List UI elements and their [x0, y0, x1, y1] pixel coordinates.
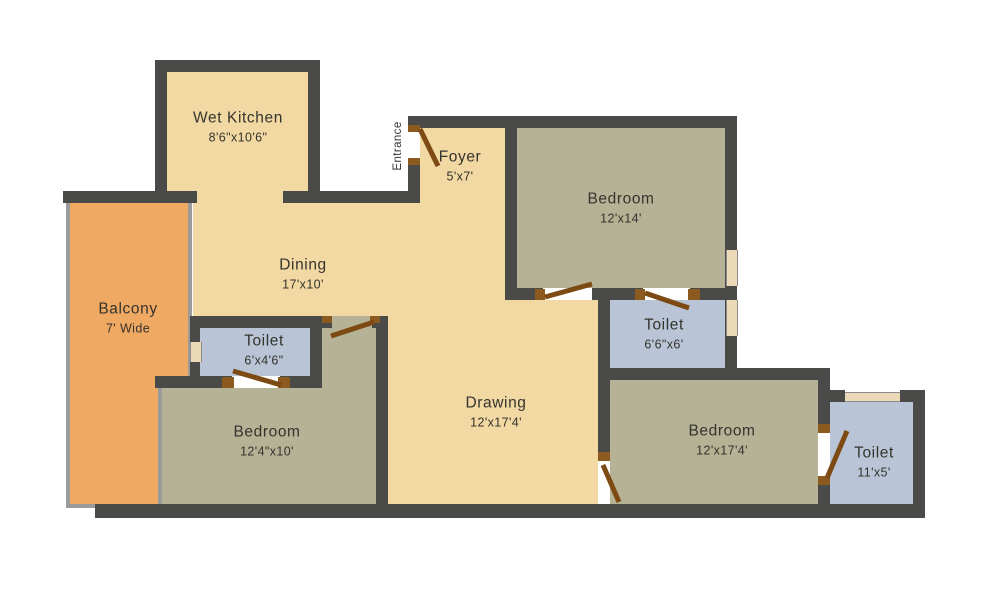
- toilet-left-floor: [200, 328, 310, 376]
- door-post: [222, 377, 234, 388]
- wall-kitchen-right: [308, 60, 320, 203]
- door-post: [598, 452, 610, 461]
- wet-kitchen-floor: [167, 72, 308, 203]
- balcony-bedroom-divider: [158, 388, 162, 506]
- dining-drawing-passage-floor: [505, 300, 598, 316]
- wall-bedroom-bottomleft-top: [155, 376, 232, 388]
- window-toilet-bottomright: [845, 392, 900, 402]
- door-post: [818, 476, 830, 485]
- wall-toilet-left-west-a: [190, 328, 200, 342]
- door-post: [322, 316, 332, 323]
- wall-toilet-left-west-b: [190, 362, 200, 376]
- wall-drawing-right: [598, 380, 610, 458]
- toilet-right-floor: [610, 300, 725, 368]
- bedroom-topright-floor: [517, 128, 725, 288]
- bedroom-bottomright-floor: [610, 380, 818, 506]
- balcony-railing-bottom: [66, 504, 98, 508]
- wall-toilet-left-top: [190, 316, 322, 328]
- entrance-label: Entrance: [392, 121, 404, 170]
- wall-foyer-left-lower: [408, 163, 420, 203]
- wall-toilet-right-left: [598, 288, 610, 380]
- wall-bedroom-bottomright-top: [598, 368, 830, 380]
- window-toilet-left: [190, 342, 202, 362]
- door-post: [535, 289, 545, 300]
- balcony-floor-lower: [70, 376, 158, 504]
- floor-plan: Wet Kitchen 8'6"x10'6" Foyer 5'x7' Bedro…: [0, 0, 1000, 600]
- balcony-railing-left: [66, 203, 70, 508]
- door-post: [688, 289, 700, 300]
- door-post: [408, 158, 420, 165]
- balcony-floor-upper: [70, 203, 190, 376]
- wall-toilet-bottomright-top-a: [830, 390, 845, 402]
- drawing-floor: [388, 316, 598, 506]
- wall-bedroom-topright-left: [505, 116, 517, 300]
- wall-dining-top: [283, 191, 420, 203]
- dining-floor: [193, 203, 505, 316]
- wall-kitchen-left: [155, 60, 167, 203]
- wall-balcony-top: [63, 191, 197, 203]
- wall-toilet-bottomright-top-b: [900, 390, 913, 402]
- wall-kitchen-top: [155, 60, 320, 72]
- foyer-floor: [420, 128, 505, 203]
- toilet-bottomright-floor: [830, 402, 913, 506]
- door-post: [408, 125, 420, 132]
- wall-bedroom-bottomleft-right: [376, 316, 388, 506]
- door-post: [278, 377, 290, 388]
- window-toilet-right: [726, 300, 738, 336]
- door-post: [370, 316, 380, 323]
- bedroom-bottomleft-floor: [162, 388, 376, 506]
- wall-right-outer-upper: [725, 116, 737, 380]
- wall-bottom-outer: [95, 504, 925, 518]
- door-post: [635, 289, 645, 300]
- window-bedroom-topright: [726, 250, 738, 286]
- door-post: [818, 424, 830, 433]
- wall-right-outer-lower: [913, 390, 925, 518]
- wall-top-outer: [408, 116, 737, 128]
